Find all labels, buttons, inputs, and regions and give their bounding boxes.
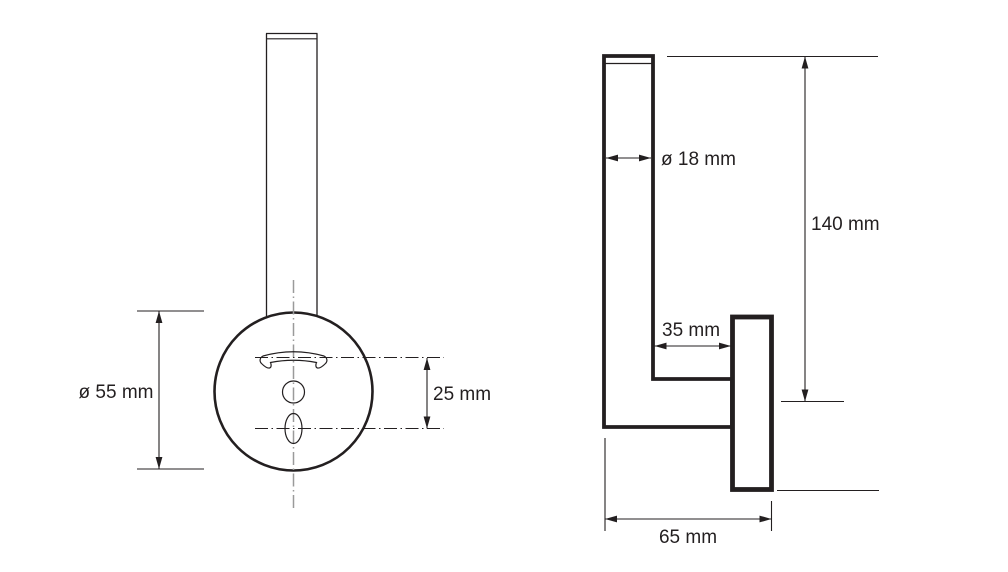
- side-view: ø 18 mm 140 mm 35 mm 65 mm: [604, 56, 880, 548]
- front-view: ø 55 mm 25 mm: [79, 34, 492, 511]
- wall-plate-outline: [733, 317, 772, 490]
- front-rod-outline: [266, 34, 318, 321]
- spare-roll-holder-drawing: ø 55 mm 25 mm ø 18 mm: [0, 0, 1008, 572]
- dim-wall-offset-label: 35 mm: [662, 320, 720, 341]
- side-rod-and-arm-outline: [604, 56, 732, 427]
- dim-hole-offset: 25 mm: [427, 358, 491, 429]
- dim-wall-offset: 35 mm: [655, 320, 732, 346]
- dim-hole-offset-label: 25 mm: [433, 384, 491, 405]
- dim-plate-diameter: ø 55 mm: [79, 311, 204, 469]
- dim-total-height-label: 140 mm: [811, 214, 880, 235]
- technical-drawing-page: ø 55 mm 25 mm ø 18 mm: [0, 0, 1008, 572]
- dim-plate-diameter-label: ø 55 mm: [79, 382, 154, 403]
- dim-total-depth-label: 65 mm: [659, 527, 717, 548]
- dim-rod-diameter-label: ø 18 mm: [661, 149, 736, 170]
